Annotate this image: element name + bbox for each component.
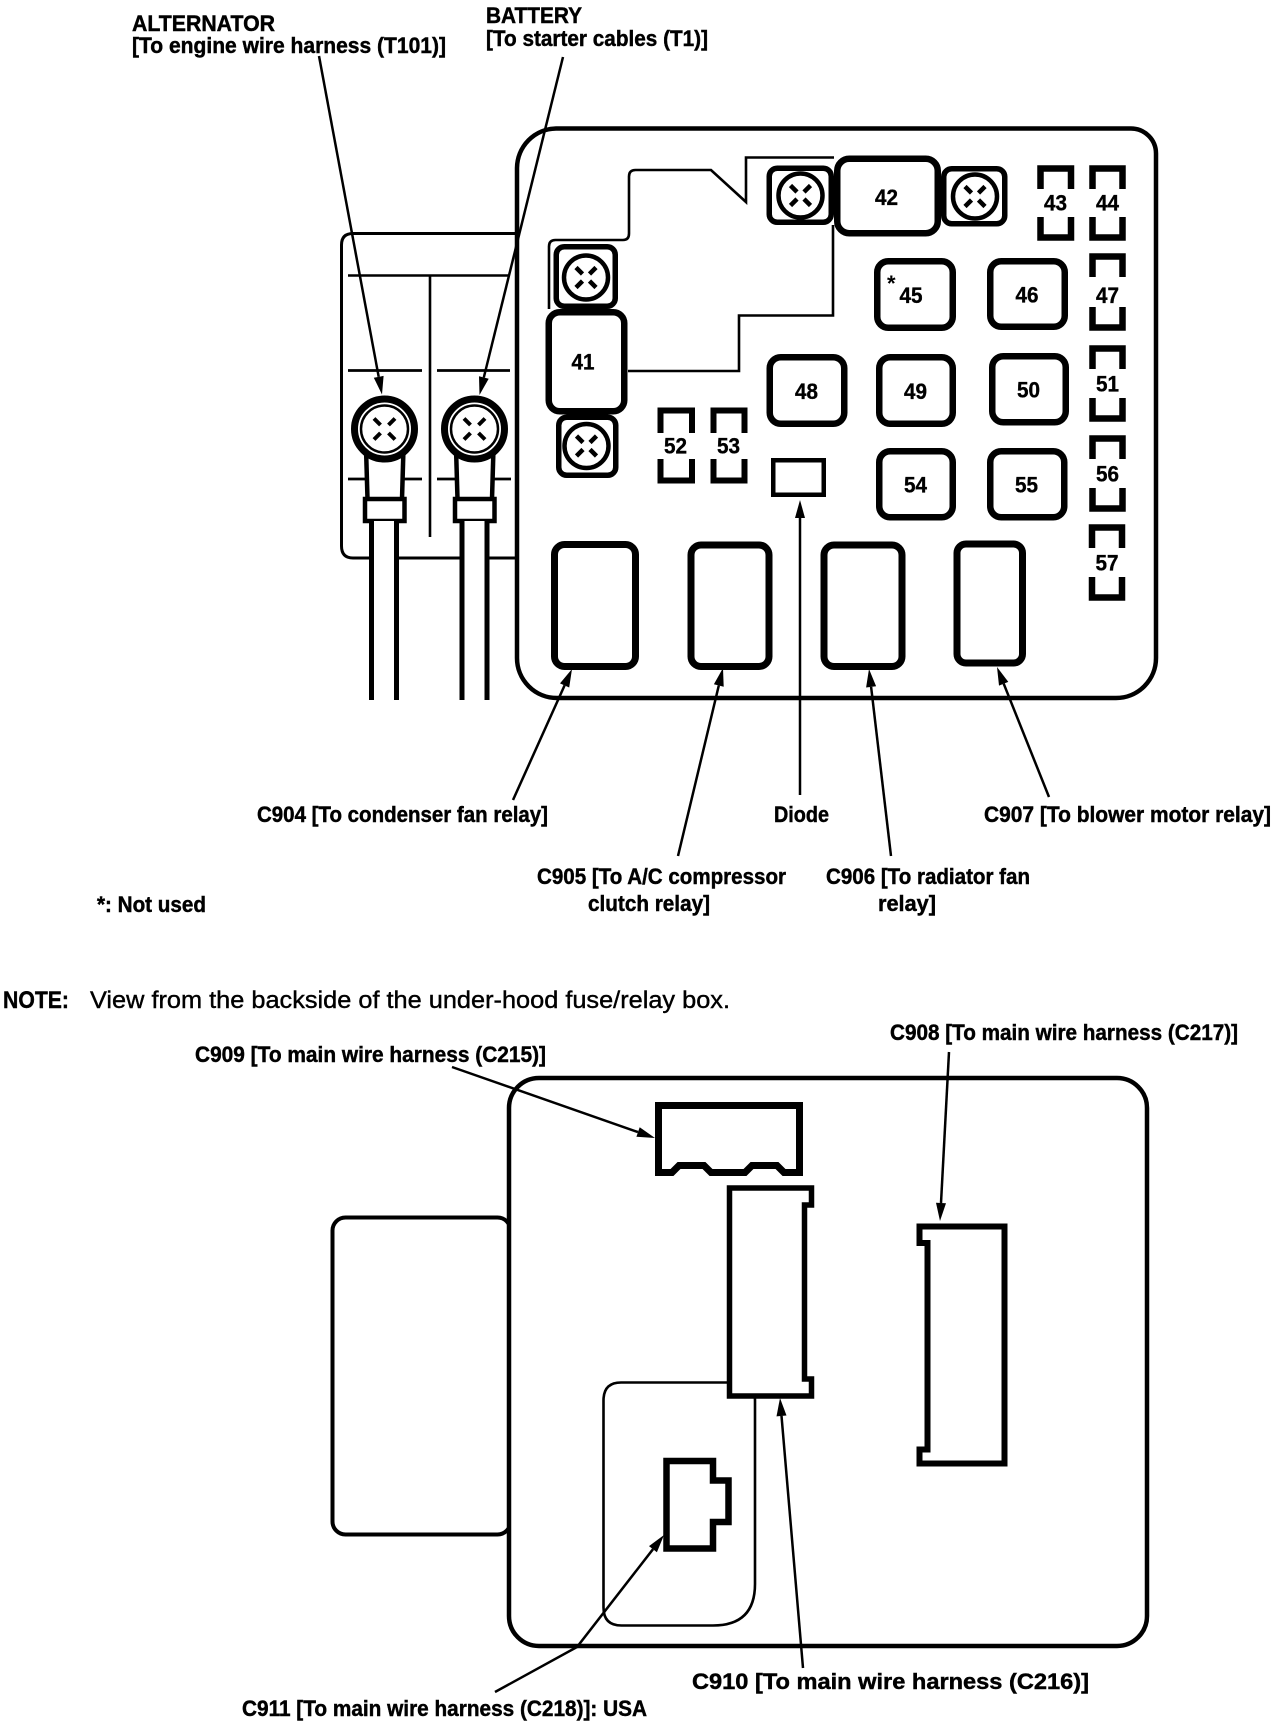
svg-text:C911 [To main wire harness (C2: C911 [To main wire harness (C218)]: USA [242, 1696, 647, 1721]
svg-text:Diode: Diode [774, 802, 829, 827]
svg-text:[To engine wire harness (T101): [To engine wire harness (T101)] [132, 33, 446, 58]
svg-text:48: 48 [795, 379, 818, 404]
svg-text:49: 49 [904, 379, 927, 404]
svg-text:56: 56 [1096, 462, 1119, 487]
svg-text:BATTERY: BATTERY [486, 3, 582, 28]
svg-text:C904 [To condenser fan relay]: C904 [To condenser fan relay] [257, 802, 548, 827]
svg-text:NOTE:: NOTE: [3, 987, 69, 1014]
svg-text:C910 [To main wire harness (C2: C910 [To main wire harness (C216)] [692, 1669, 1089, 1694]
svg-text:41: 41 [572, 350, 595, 375]
svg-text:46: 46 [1016, 283, 1039, 308]
svg-text:54: 54 [904, 473, 928, 498]
svg-text:43: 43 [1044, 191, 1067, 216]
svg-text:42: 42 [875, 185, 898, 210]
svg-text:*: * [887, 271, 896, 296]
svg-text:53: 53 [717, 434, 740, 459]
svg-text:clutch relay]: clutch relay] [588, 891, 710, 916]
svg-text:47: 47 [1096, 283, 1119, 308]
svg-text:55: 55 [1015, 473, 1038, 498]
svg-text:45: 45 [900, 283, 923, 308]
svg-text:44: 44 [1096, 191, 1120, 216]
svg-text:C909 [To main wire harness (C2: C909 [To main wire harness (C215)] [195, 1042, 546, 1067]
svg-text:relay]: relay] [878, 891, 936, 916]
svg-text:View from the backside of the: View from the backside of the under-hood… [90, 987, 730, 1014]
svg-text:51: 51 [1096, 372, 1119, 397]
svg-text:C905 [To A/C compressor: C905 [To A/C compressor [537, 864, 786, 889]
svg-text:52: 52 [664, 434, 687, 459]
svg-text:[To starter cables (T1)]: [To starter cables (T1)] [486, 26, 708, 51]
svg-text:*: Not used: *: Not used [97, 892, 206, 917]
svg-text:50: 50 [1017, 378, 1040, 403]
svg-text:C908 [To main wire harness (C2: C908 [To main wire harness (C217)] [890, 1020, 1238, 1045]
svg-text:C907 [To blower motor relay]: C907 [To blower motor relay] [984, 802, 1271, 827]
svg-text:57: 57 [1096, 551, 1119, 576]
svg-text:C906 [To radiator fan: C906 [To radiator fan [826, 864, 1030, 889]
